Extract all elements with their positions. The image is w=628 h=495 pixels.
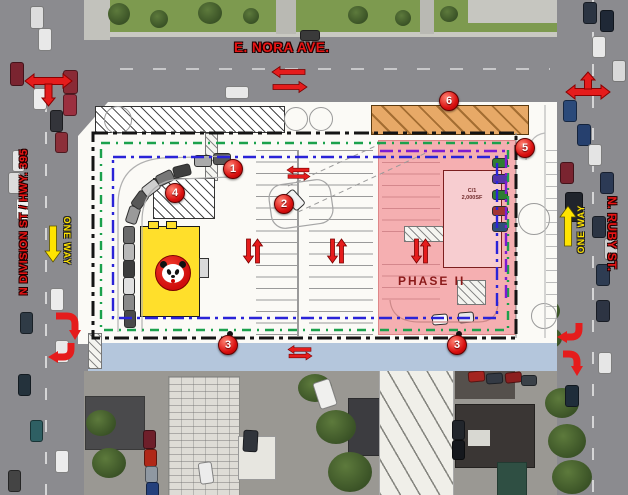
up-arrow-icon <box>253 239 263 263</box>
intersection-arrow-nw <box>25 74 72 106</box>
turn-arrow-icon <box>567 323 579 337</box>
down-arrow-icon <box>412 239 422 263</box>
down-arrow-icon <box>42 84 55 106</box>
turn-arrow-icon <box>563 354 577 367</box>
sight-lines <box>288 144 428 212</box>
turn-arrow-icon <box>58 343 71 357</box>
marker-number: 1 <box>230 163 236 175</box>
up-arrow-icon <box>421 239 431 263</box>
right-arrow-icon <box>273 82 307 93</box>
aisle-arrows <box>244 239 431 263</box>
left-arrow-icon <box>287 166 309 174</box>
turn-arrow-icon <box>56 316 75 331</box>
street-label-ruby: N. RUBY ST. <box>605 184 619 284</box>
one-way-label-south: ONE WAY <box>62 214 72 268</box>
drive-thru-lane-lines <box>118 105 545 338</box>
left-arrow-icon <box>288 346 311 354</box>
site-plan-screenshot: C/1 2,000SF <box>0 0 628 495</box>
marker-number: 3 <box>225 339 231 351</box>
up-arrow-icon <box>337 239 347 263</box>
marker-number: 4 <box>172 187 178 199</box>
one-way-arrow-north-icon <box>560 206 576 246</box>
marker-number: 2 <box>281 198 287 210</box>
intersection-arrow-ne <box>566 72 610 99</box>
site-marker-5: 5 <box>515 138 535 158</box>
turn-arrows-ruby <box>563 323 579 367</box>
site-marker-1: 1 <box>223 159 243 179</box>
left-arrow-icon <box>272 67 305 78</box>
turn-arrows-division <box>56 316 75 357</box>
drive-thru-flow-arrows <box>287 166 310 181</box>
marker-number: 3 <box>454 339 460 351</box>
site-marker-3-west: 3 <box>218 335 238 355</box>
site-marker-6: 6 <box>439 91 459 111</box>
one-way-label-north: ONE WAY <box>576 202 586 256</box>
right-arrow-icon <box>288 173 310 181</box>
down-arrow-icon <box>328 239 338 263</box>
up-arrow-icon <box>581 72 595 89</box>
phase2-label: PHASE II <box>398 274 465 288</box>
right-arrow-icon <box>289 352 312 360</box>
alley-flow-arrows <box>288 346 312 361</box>
plan-overlay <box>0 0 628 495</box>
street-flow-arrows-nora <box>272 67 307 93</box>
site-marker-2: 2 <box>274 194 294 214</box>
property-boundary-black <box>93 133 516 338</box>
site-marker-4: 4 <box>165 183 185 203</box>
marker-number: 6 <box>446 95 452 107</box>
marker-number: 5 <box>522 142 528 154</box>
street-label-nora: E. NORA AVE. <box>234 40 330 55</box>
down-arrow-icon <box>244 239 254 263</box>
one-way-arrow-south-icon <box>45 226 61 262</box>
site-marker-3-east: 3 <box>447 335 467 355</box>
street-label-division: N DIVISION ST / HWY. 395 <box>18 128 30 316</box>
